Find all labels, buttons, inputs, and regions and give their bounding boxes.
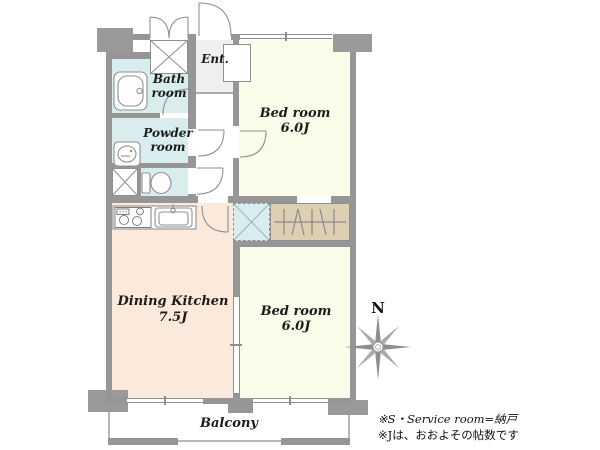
wall — [233, 247, 240, 297]
powder-room-label-line1: Powder — [143, 126, 192, 140]
window-tick — [285, 32, 287, 41]
compass-north-label: N — [371, 299, 385, 317]
wall — [233, 196, 297, 203]
wall-left — [106, 59, 112, 400]
powder-room-label-line2: room — [143, 140, 192, 154]
dining-kitchen-label-line2: 7.5J — [117, 310, 228, 326]
bathroom-label: Bath room — [151, 72, 186, 100]
window-tick — [164, 396, 166, 405]
wall — [106, 398, 127, 404]
floor-plan: Ent. Bath room Powder room Bed room 6.0J… — [0, 0, 600, 450]
footnote-line2: ※Jは、おおよその帖数です — [378, 427, 519, 443]
wall — [133, 34, 150, 40]
balcony-label: Balcony — [200, 416, 258, 431]
bathroom-label-line2: room — [151, 86, 186, 100]
sliding-door-tick — [230, 344, 242, 346]
pillar-top-left — [97, 28, 133, 52]
pillar-top-right — [333, 34, 372, 52]
washing-machine-icon — [112, 168, 138, 196]
bedroom-bottom-label: Bed room 6.0J — [261, 304, 332, 334]
shoe-storage-icon — [150, 40, 188, 74]
wall — [203, 398, 253, 404]
entrance-label-text: Ent. — [201, 52, 229, 66]
dining-kitchen-label-line1: Dining Kitchen — [117, 294, 228, 310]
window-tick — [289, 396, 291, 405]
bathroom-label-line1: Bath — [151, 72, 186, 86]
hanger-closet — [270, 203, 350, 241]
footnote-line1: ※S・Service room=納戸 — [378, 411, 519, 427]
balcony-label-text: Balcony — [200, 416, 258, 431]
wall — [233, 241, 356, 247]
balcony-divider-stub — [228, 404, 253, 413]
bedroom-top-label: Bed room 6.0J — [260, 107, 331, 136]
bedroom-bottom-label-line1: Bed room — [261, 304, 332, 319]
balcony-edge-left — [108, 438, 178, 445]
entrance-step-line — [196, 92, 233, 94]
wall-right — [350, 52, 356, 400]
bedroom-bottom-label-line2: 6.0J — [261, 319, 332, 334]
wall — [328, 398, 350, 404]
wall — [233, 158, 239, 196]
footnotes: ※S・Service room=納戸 ※Jは、おおよその帖数です — [378, 411, 519, 443]
bedroom-top-label-line1: Bed room — [260, 107, 331, 122]
wall — [112, 113, 160, 118]
wall — [331, 196, 356, 203]
balcony-edge-right — [281, 438, 350, 445]
storage-x-box — [233, 203, 270, 241]
entrance-label: Ent. — [201, 52, 229, 66]
dining-kitchen-label: Dining Kitchen 7.5J — [117, 294, 228, 326]
powder-room-label: Powder room — [143, 126, 192, 154]
wall — [106, 196, 198, 203]
window — [253, 398, 328, 403]
wall — [188, 34, 196, 129]
bedroom-top-label-line2: 6.0J — [260, 122, 331, 137]
wall — [138, 168, 141, 196]
